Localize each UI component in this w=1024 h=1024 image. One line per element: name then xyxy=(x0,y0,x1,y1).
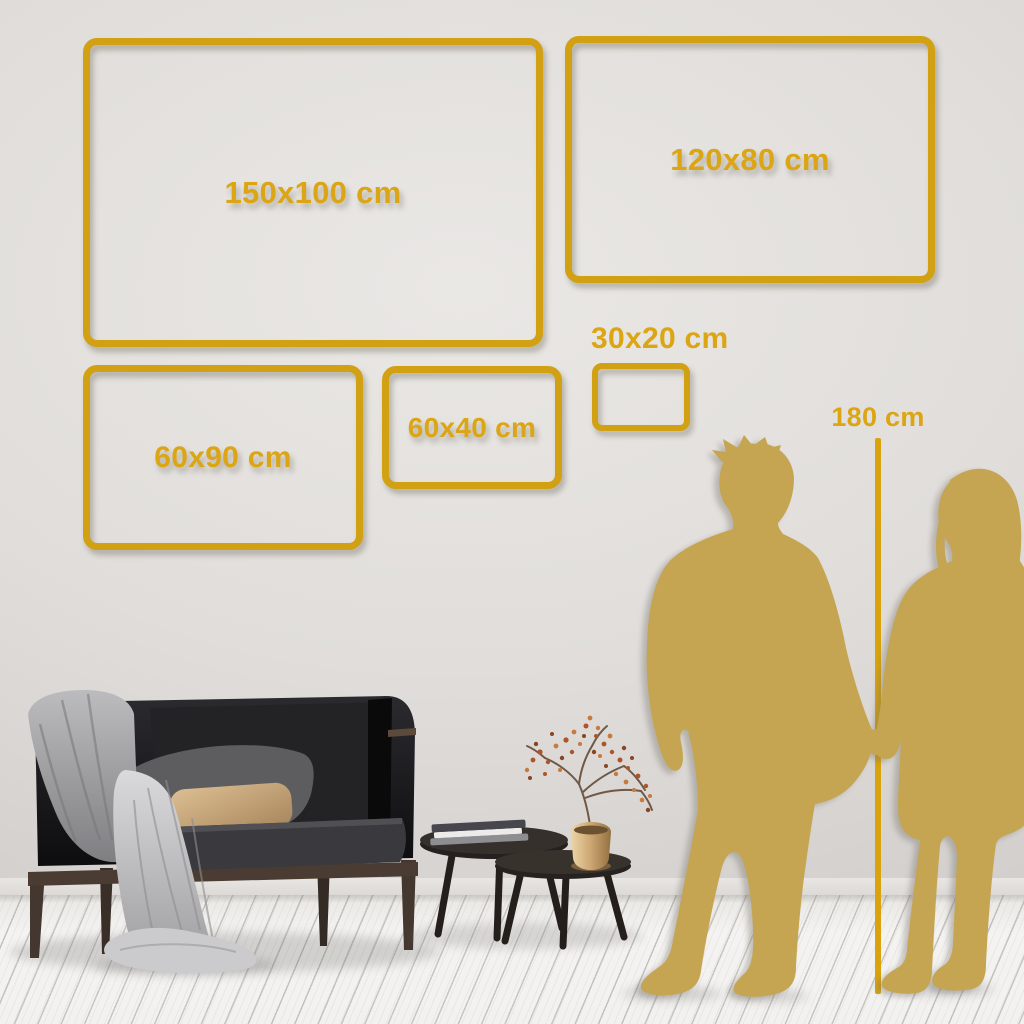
baseboard xyxy=(0,878,1024,896)
size-label-30x20: 30x20 cm xyxy=(591,322,729,356)
size-label-60x90: 60x90 cm xyxy=(154,441,292,475)
size-frame-60x90: 60x90 cm xyxy=(83,365,363,550)
size-frame-150x100: 150x100 cm xyxy=(83,38,543,347)
height-reference-label: 180 cm xyxy=(831,402,924,433)
size-label-120x80: 120x80 cm xyxy=(670,142,830,178)
size-frame-120x80: 120x80 cm xyxy=(565,36,935,283)
size-guide-scene: 150x100 cm 120x80 cm 60x90 cm 60x40 cm 3… xyxy=(0,0,1024,1024)
size-frame-30x20 xyxy=(592,363,690,431)
size-frame-60x40: 60x40 cm xyxy=(382,366,562,489)
height-reference-line xyxy=(875,438,881,994)
wood-floor xyxy=(0,895,1024,1024)
wall-floor-shadow xyxy=(0,895,1024,903)
size-label-60x40: 60x40 cm xyxy=(408,412,537,444)
size-label-150x100: 150x100 cm xyxy=(224,175,401,211)
